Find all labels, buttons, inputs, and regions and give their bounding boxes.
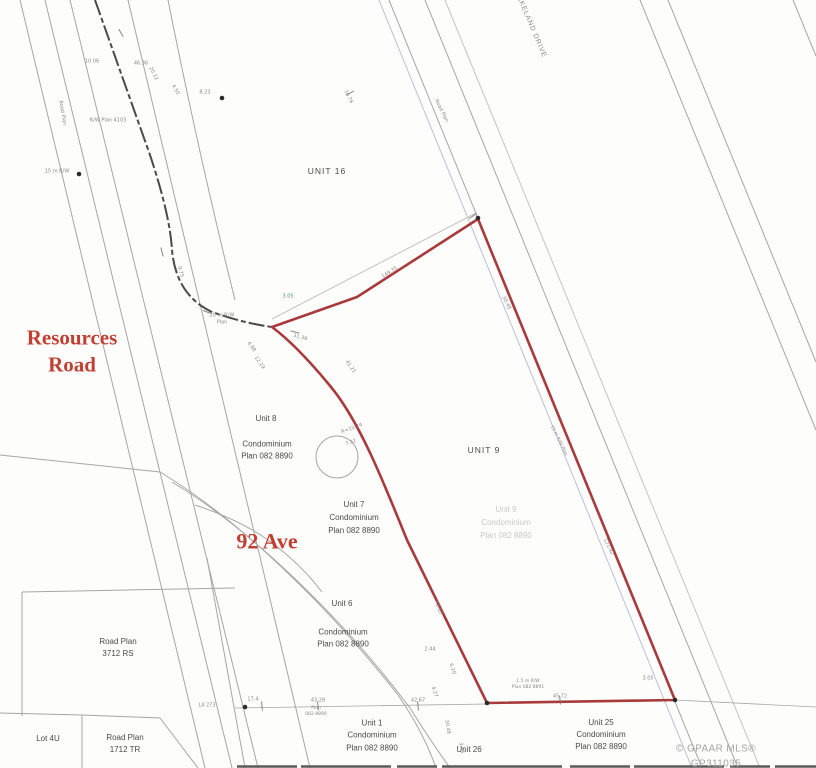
lot-4u-label: Lot 4U — [36, 733, 60, 745]
road-plan-1712-label: Road Plan 1712 TR — [106, 732, 143, 756]
survey-tick — [262, 702, 263, 711]
mls-watermark: © GPAAR MLS® GP311035 — [666, 743, 766, 768]
survey-monument-dot — [485, 701, 490, 706]
92-ave-label: 92 Ave — [236, 528, 297, 557]
unit-16-label: UNIT 16 — [308, 165, 347, 177]
survey-annotation: 20 m R/W Plan — [210, 312, 235, 326]
survey-annotation: L4 273 — [198, 703, 215, 710]
unit-25-label: Unit 25 Condominium Plan 082 8890 — [575, 717, 627, 753]
survey-annotation: Plan 082 8890 — [305, 706, 326, 718]
survey-annotation: 45.72 — [553, 694, 567, 701]
unit-9-label: UNIT 9 — [468, 444, 501, 456]
unit-8-plan-label: Condominium Plan 082 8890 — [241, 439, 293, 464]
road-plan-3712-label: Road Plan 3712 RS — [99, 636, 136, 660]
survey-annotation: 2.44 — [424, 647, 435, 654]
survey-annotation: 17.4 — [247, 697, 258, 704]
survey-annotation: 15 m R/W — [45, 169, 70, 176]
unit-9-ghost-label: Unit 9 Condominium Plan 082 8890 — [480, 504, 532, 542]
unit-6-label: Unit 6 — [332, 598, 353, 610]
unit-7-label: Unit 7 Condominium Plan 082 8890 — [328, 499, 380, 537]
survey-monument-dot — [476, 216, 481, 221]
survey-annotation: 8.23 — [199, 90, 210, 97]
survey-monument-dot — [243, 705, 248, 710]
survey-annotation: 10.06 — [85, 59, 99, 66]
top-right-road-lines — [640, 0, 816, 430]
unit-1-label: Unit 1 Condominium Plan 082 8890 — [346, 717, 398, 754]
survey-tick — [119, 29, 123, 37]
unit-8-label: Unit 8 — [256, 413, 277, 425]
survey-monument-dot — [673, 698, 678, 703]
lakeland-drive-lines — [379, 0, 760, 768]
survey-monument-dot — [220, 96, 225, 101]
parcel-lines — [0, 213, 816, 768]
survey-annotation: 43.28 — [311, 698, 325, 705]
road-centerline — [95, 0, 272, 327]
survey-annotation: 1.5 m R/W Plan 082 8891 — [512, 679, 544, 691]
unit-6-plan-label: Condominium Plan 082 8890 — [317, 627, 369, 652]
resources-road-label: Resources Road — [27, 325, 118, 380]
survey-monument-dot — [77, 172, 82, 177]
survey-annotation: 46.36 — [134, 61, 148, 68]
survey-annotation: 3.05 — [282, 294, 293, 301]
plat-map: Resources Road92 AveUNIT 16UNIT 9Unit 8C… — [0, 0, 816, 768]
survey-annotation: 3.05 — [642, 676, 653, 683]
survey-tick — [161, 248, 163, 257]
survey-monument-dots — [77, 96, 678, 710]
survey-annotation: R/W Plan 4103 — [90, 118, 127, 125]
survey-annotation: 42.67 — [411, 698, 425, 705]
